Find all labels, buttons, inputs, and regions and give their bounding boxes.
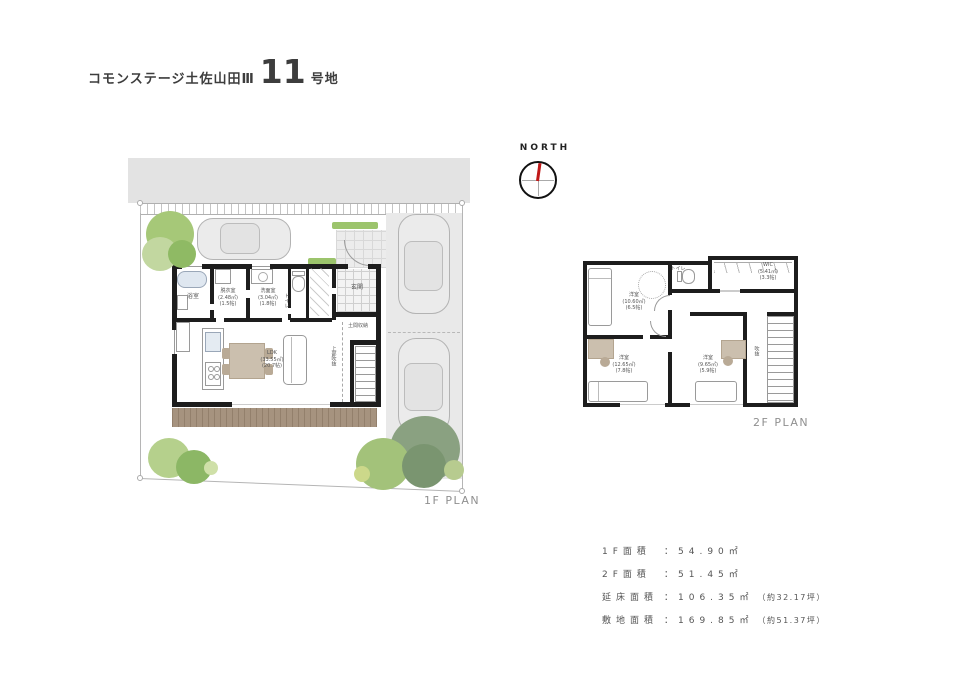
caption-1f-plan: 1F PLAN	[424, 494, 480, 507]
car-icon	[398, 214, 450, 314]
area-table: 1F面積 ： 54.90㎡ 2F面積 ： 51.45㎡ 延床面積 ： 106.3…	[602, 544, 826, 636]
kitchen-cabinet	[176, 322, 190, 352]
room-label-room-se: 洋室 (9.65㎡) (5.9帖)	[684, 355, 732, 375]
washing-machine	[215, 269, 231, 284]
wall	[332, 266, 336, 288]
table-row: 2F面積 ： 51.45㎡	[602, 567, 826, 590]
parking-divider	[388, 332, 460, 333]
wall	[350, 340, 381, 345]
wall	[740, 289, 798, 293]
bed	[588, 381, 648, 402]
tree-icon	[204, 461, 218, 475]
area-row-colon: ：	[664, 590, 678, 603]
toilet-icon	[292, 276, 305, 292]
road	[128, 158, 470, 203]
wall	[583, 261, 712, 265]
vanity-basin	[258, 272, 268, 282]
car-icon	[197, 218, 291, 260]
wall	[224, 318, 282, 322]
wall	[376, 264, 381, 407]
room-label-bedroom-nw: 洋室 (10.60㎡) (6.5帖)	[610, 292, 658, 312]
wall	[743, 312, 747, 407]
room-label-doma: 土間収納	[340, 323, 376, 330]
room-label-room-sw: 洋室 (12.65㎡) (7.8帖)	[600, 355, 648, 375]
table-row: 敷地面積 ： 169.85㎡ （約51.37坪）	[602, 613, 826, 636]
wall	[246, 266, 250, 290]
void-boundary	[342, 322, 343, 402]
caption-2f-plan: 2F PLAN	[753, 416, 809, 429]
bed-pillow-line	[598, 382, 599, 401]
area-row-value: 54.90㎡	[678, 544, 743, 557]
wall	[668, 310, 672, 339]
car-cabin	[404, 241, 443, 291]
tree-icon	[444, 460, 464, 480]
bed-pillow-line	[589, 278, 611, 279]
site-boundary-left	[140, 213, 141, 479]
area-row-label: 延床面積	[602, 590, 664, 603]
area-row-colon: ：	[664, 613, 678, 626]
table-row: 延床面積 ： 106.35㎡ （約32.17坪）	[602, 590, 826, 613]
wall	[668, 352, 672, 407]
room-label-toilet-2f: トイレ	[670, 266, 686, 273]
area-row-value: 169.85㎡	[678, 613, 754, 626]
north-label: NORTH	[513, 143, 577, 153]
room-label-bath: 浴室	[176, 293, 210, 301]
wall	[330, 402, 381, 407]
boundary-marker	[137, 200, 143, 206]
wall	[336, 312, 381, 317]
stove-burner	[214, 374, 220, 380]
area-row-label: 敷地面積	[602, 613, 664, 626]
window	[232, 403, 330, 406]
stove-burner	[214, 366, 220, 372]
dining-chair	[222, 348, 230, 359]
table-row: 1F面積 ： 54.90㎡	[602, 544, 826, 567]
bathtub	[177, 271, 207, 288]
area-row-note: （約51.37坪）	[758, 615, 826, 626]
area-row-value: 106.35㎡	[678, 590, 754, 603]
area-row-value: 51.45㎡	[678, 567, 743, 580]
wall	[668, 289, 720, 293]
wall	[210, 310, 214, 320]
area-row-colon: ：	[664, 544, 678, 557]
toilet-tank	[677, 271, 682, 282]
wall	[708, 256, 712, 293]
wall	[794, 256, 798, 407]
wall	[708, 256, 798, 260]
toilet-tank	[292, 271, 305, 276]
window	[690, 403, 743, 406]
wall	[583, 403, 620, 407]
wall	[350, 345, 354, 407]
area-row-note: （約32.17坪）	[758, 592, 826, 603]
sliding-door	[720, 289, 740, 293]
area-row-label: 2F面積	[602, 567, 664, 580]
wall	[288, 314, 291, 320]
area-row-label: 1F面積	[602, 544, 664, 557]
staircase	[355, 346, 376, 402]
wall	[583, 261, 587, 407]
tree-icon	[402, 444, 446, 488]
lot-number: 11	[260, 52, 306, 91]
wall	[306, 266, 309, 320]
bed	[588, 268, 612, 326]
shoe-closet	[310, 268, 329, 316]
wall	[743, 403, 798, 407]
car-cabin	[220, 223, 260, 254]
room-label-void: 吹抜	[753, 346, 760, 368]
wall	[172, 402, 232, 407]
site-boundary-right	[462, 203, 463, 491]
kitchen-sink	[205, 332, 221, 352]
window	[620, 403, 665, 406]
area-row-colon: ：	[664, 567, 678, 580]
wood-deck	[172, 408, 377, 427]
bed	[695, 381, 737, 402]
boundary-marker	[459, 200, 465, 206]
tree-icon	[168, 240, 196, 268]
lot-unit: 号地	[311, 68, 339, 87]
room-label-wic: WIC (5.41㎡) (3.3帖)	[744, 262, 792, 282]
page-title: コモンステージ土佐山田Ⅲ 11 号地	[88, 52, 339, 91]
staircase	[768, 316, 794, 403]
dining-chair	[222, 364, 230, 375]
floor-plan-sheet: コモンステージ土佐山田Ⅲ 11 号地 NORTH	[0, 0, 960, 678]
room-label-void-above: 上部吹抜	[330, 346, 337, 376]
room-label-laundry: 脱衣室 (2.48㎡) (1.5帖)	[209, 288, 247, 308]
car-cabin	[404, 363, 443, 411]
room-label-ldk: LDK (33.55㎡) (20.7帖)	[252, 350, 292, 370]
room-label-entrance: 玄関	[344, 284, 370, 292]
tree-icon	[354, 466, 370, 482]
planting-strip	[332, 222, 378, 229]
project-name: コモンステージ土佐山田Ⅲ	[88, 68, 255, 87]
boundary-marker	[137, 475, 143, 481]
wall	[290, 318, 332, 322]
wall	[690, 312, 747, 316]
room-label-toilet: トイレ	[283, 293, 290, 313]
